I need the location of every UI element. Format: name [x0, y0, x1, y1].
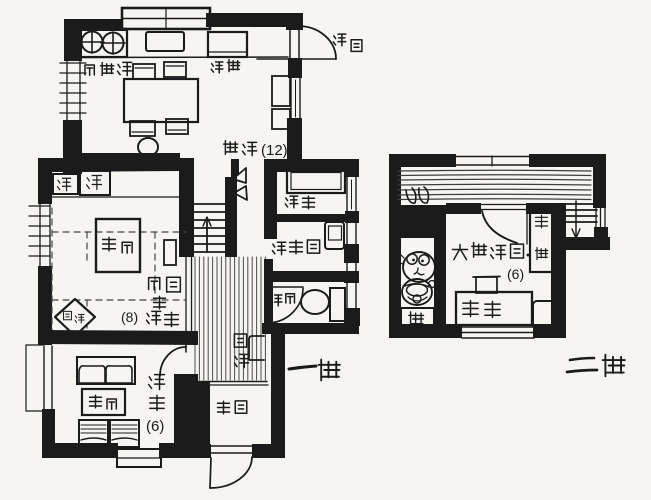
svg-text:(8): (8) — [121, 309, 138, 325]
svg-text:(12): (12) — [261, 142, 288, 159]
svg-text:(6): (6) — [507, 266, 524, 282]
svg-text:(6): (6) — [146, 418, 164, 435]
